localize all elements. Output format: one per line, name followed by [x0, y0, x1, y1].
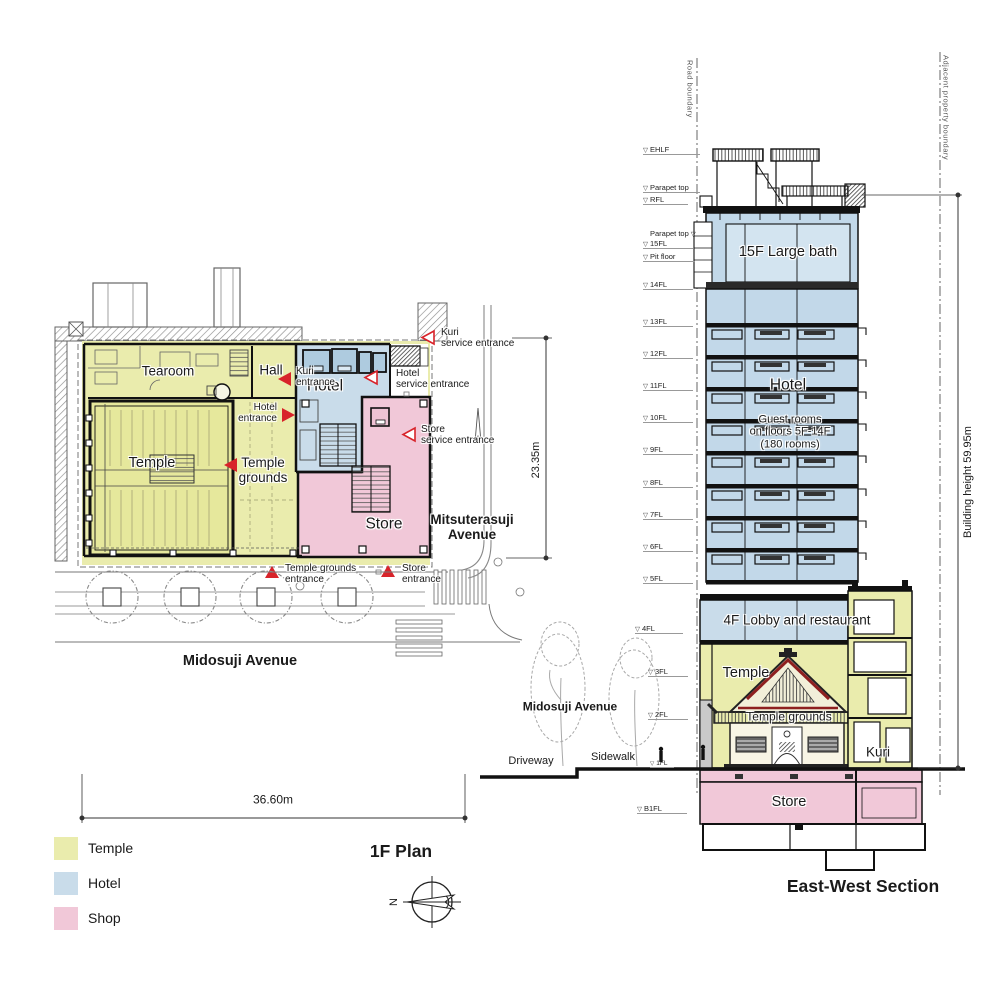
section-guest-rooms-label: Guest rooms on floors 5F-14F (180 rooms)	[750, 414, 831, 451]
drawing-graphics	[0, 0, 1000, 1000]
plan-temple-grounds-label: Temple grounds	[239, 455, 288, 485]
level-13fl: ▽13FL	[643, 315, 693, 327]
level-rfl: ▽RFL	[643, 193, 688, 205]
crosswalk-east	[396, 620, 442, 656]
level-9fl: ▽9FL	[643, 443, 693, 455]
section-trees	[531, 622, 659, 766]
sidewalk-label: Sidewalk	[591, 751, 635, 763]
plan-tearoom-label: Tearoom	[142, 363, 195, 378]
hotel-service-entrance-label: Hotel service entrance	[396, 368, 469, 390]
building-height-label: Building height 59.95m	[962, 426, 974, 538]
store-service-entrance-label: Store service entrance	[421, 424, 494, 446]
level-15fl: ▽15FL	[643, 237, 693, 249]
temple-grounds-entrance-label: Temple grounds entrance	[285, 563, 356, 585]
crosswalk-south	[434, 570, 486, 604]
plan-hall-label: Hall	[259, 362, 282, 377]
section-lobby-label: 4F Lobby and restaurant	[723, 612, 870, 627]
section-hotel-label: Hotel	[770, 376, 806, 393]
north-compass	[403, 876, 461, 928]
width-dimension-label: 36.60m	[253, 793, 293, 806]
kuri-entrance-label: Kuri entrance	[296, 366, 335, 388]
level-1fl: ▽1FL	[650, 756, 674, 768]
midosuji-avenue-label-section: Midosuji Avenue	[523, 700, 617, 713]
north-label: N	[388, 898, 400, 906]
level-4fl: ▽4FL	[635, 622, 683, 634]
plan-temple-label: Temple	[129, 455, 176, 471]
legend-swatch-hotel	[54, 872, 78, 895]
road-boundary-label: Road boundary	[685, 60, 693, 118]
section-temple-grounds-label: Temple grounds	[746, 710, 831, 723]
plan-title: 1F Plan	[370, 842, 432, 862]
level-ehlf: ▽EHLF	[643, 143, 700, 155]
level-3fl: ▽3FL	[648, 665, 688, 677]
level-8fl: ▽8FL	[643, 476, 693, 488]
level-6fl: ▽6FL	[643, 540, 693, 552]
hotel-entrance-label: Hotel entrance	[238, 402, 277, 424]
level-5fl: ▽5FL	[643, 572, 693, 584]
mitsuterasuji-avenue-label: Mitsuterasuji Avenue	[430, 512, 513, 542]
plan-temple-room	[86, 401, 233, 555]
level-11fl: ▽11FL	[643, 379, 693, 391]
level-pit-floor: ▽Pit floor	[643, 250, 695, 262]
section-temple	[700, 644, 868, 768]
section-title: East-West Section	[787, 877, 939, 897]
depth-dimension-label: 23.35m	[530, 442, 542, 479]
foundation	[703, 824, 925, 870]
level-parapet-top-1: ▽Parapet top	[643, 181, 700, 193]
store-entrance-marker	[381, 565, 395, 577]
legend-swatch-temple	[54, 837, 78, 860]
section-temple-label: Temple	[723, 665, 770, 681]
section-large-bath-label: 15F Large bath	[739, 244, 837, 260]
architectural-drawing-sheet: Tearoom Hall Temple Temple grounds Hotel…	[0, 0, 1000, 1000]
legend-label-hotel: Hotel	[88, 876, 121, 892]
level-12fl: ▽12FL	[643, 347, 693, 359]
level-7fl: ▽7FL	[643, 508, 693, 520]
level-14fl: ▽14FL	[643, 278, 693, 290]
legend-swatch-shop	[54, 907, 78, 930]
level-10fl: ▽10FL	[643, 411, 693, 423]
legend-label-temple: Temple	[88, 841, 133, 857]
section-kuri-label: Kuri	[866, 744, 890, 759]
section-store-label: Store	[772, 794, 807, 810]
plan-store-label: Store	[365, 515, 402, 532]
level-b1fl: ▽B1FL	[637, 802, 687, 814]
driveway-label: Driveway	[508, 755, 553, 767]
hotel-tower	[694, 206, 866, 585]
level-2fl: ▽2FL	[648, 708, 688, 720]
kuri-service-entrance-label: Kuri service entrance	[441, 327, 514, 349]
section-kuri	[848, 580, 912, 768]
section-store	[700, 770, 925, 870]
legend-label-shop: Shop	[88, 911, 121, 927]
roof-equipment	[700, 149, 865, 207]
adjacent-property-boundary-label: Adjacent property boundary	[941, 55, 949, 160]
midosuji-avenue-label-plan: Midosuji Avenue	[183, 653, 297, 669]
store-entrance-label: Store entrance	[402, 563, 441, 585]
